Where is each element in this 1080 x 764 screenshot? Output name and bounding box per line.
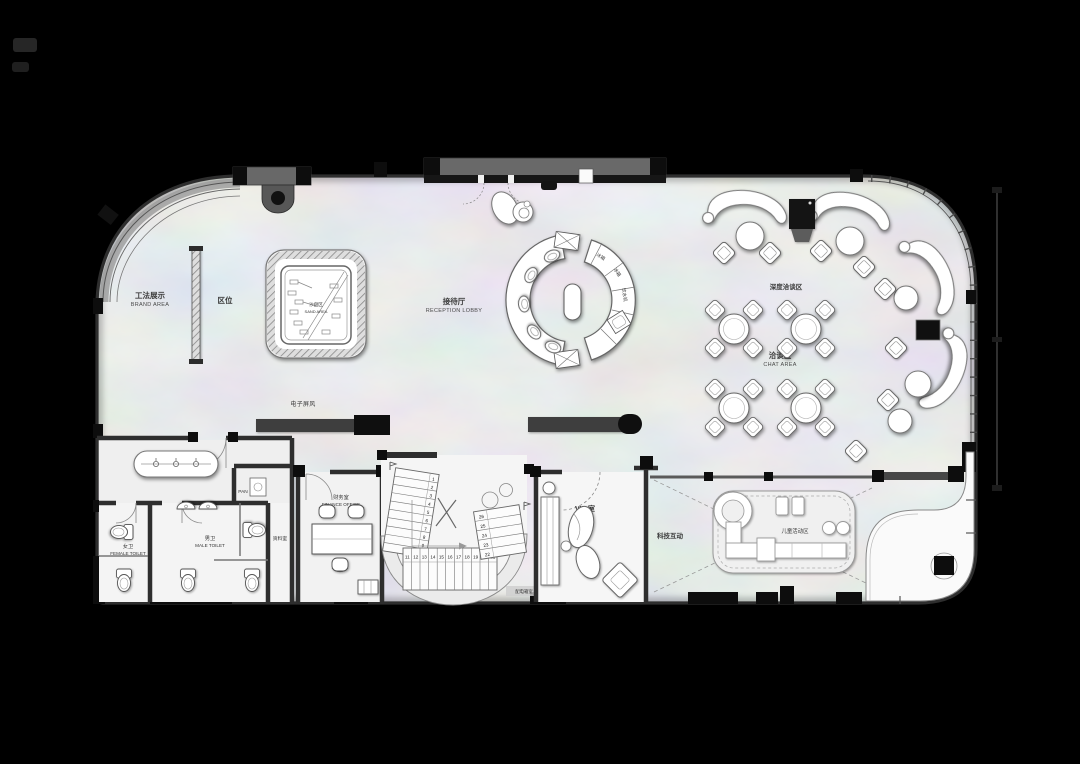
label-location: 区位	[218, 295, 233, 305]
sheet-corner-marks	[12, 38, 37, 72]
svg-text:19: 19	[473, 555, 479, 560]
svg-text:13: 13	[422, 555, 428, 560]
floor-plan-canvas: 工法展示 BRAND AREA 区位 沙盘区 SAND AREA 电子屏风	[0, 0, 1080, 764]
terrace-column	[934, 556, 954, 575]
column-block	[850, 169, 863, 182]
label-brand-en: BRAND AREA	[131, 302, 169, 308]
sand-table: 沙盘区 SAND AREA	[266, 250, 366, 358]
pantry-sink	[250, 478, 266, 496]
label-male-cn: 男卫	[205, 535, 215, 542]
svg-text:16: 16	[447, 555, 453, 560]
label-female-en: FEMALE TOILET	[110, 551, 146, 556]
toilet-fixture	[111, 525, 134, 540]
entrance-door-leaf	[579, 169, 593, 183]
label-finance-cn: 财务室	[333, 493, 349, 501]
label-female-cn: 女卫	[123, 542, 133, 550]
svg-text:18: 18	[465, 555, 471, 560]
label-power-room: 配电箱室	[515, 588, 533, 595]
label-deep-chat: 深度洽谈区	[770, 282, 803, 291]
label-archive: 资料室	[273, 535, 288, 542]
label-brand-cn: 工法展示	[135, 290, 165, 300]
svg-text:15: 15	[439, 555, 445, 560]
toilet-fixture	[245, 569, 260, 592]
label-screen: 电子屏风	[290, 400, 315, 408]
label-kids: 儿童活动区	[782, 527, 810, 535]
toilet-fixture	[243, 523, 266, 538]
location-display-wall	[192, 249, 200, 361]
kids-area: 儿童活动区	[713, 491, 855, 573]
dimension-line	[992, 187, 1002, 491]
svg-text:14: 14	[430, 555, 436, 560]
toilet-fixture	[181, 569, 196, 592]
svg-text:11: 11	[405, 555, 410, 560]
label-sand-en: SAND AREA	[305, 309, 328, 314]
entrance-door-leaf	[478, 175, 484, 183]
label-reception-cn: 接待厅	[443, 296, 466, 306]
stair-flight-c: 26 25 24 23 22	[474, 505, 527, 560]
column-block	[97, 204, 118, 225]
label-reception-en: RECEPTION LOBBY	[426, 308, 482, 314]
label-chat-en: CHAT AREA	[763, 362, 796, 368]
entrance-door-leaf	[508, 175, 514, 183]
media-column	[916, 320, 940, 340]
svg-text:12: 12	[413, 555, 419, 560]
vip-room: VIP 室	[530, 456, 658, 602]
finance-office: 财务室 FINANCE OFFICE	[293, 465, 388, 602]
label-sand-cn: 沙盘区	[309, 301, 323, 307]
vanity-counter	[134, 451, 218, 477]
label-tech: 科技互动	[657, 531, 684, 540]
column-block	[374, 162, 387, 177]
svg-text:17: 17	[456, 555, 462, 560]
label-male-en: MALE TOILET	[195, 543, 225, 548]
label-pantry: PAN	[238, 489, 248, 495]
toilet-block: 女卫 FEMALE TOILET 男卫 MALE TOILET PAN 资料室	[97, 432, 292, 602]
floor-plan-drawing: 工法展示 BRAND AREA 区位 沙盘区 SAND AREA 电子屏风	[0, 0, 1080, 764]
toilet-fixture	[117, 569, 132, 592]
